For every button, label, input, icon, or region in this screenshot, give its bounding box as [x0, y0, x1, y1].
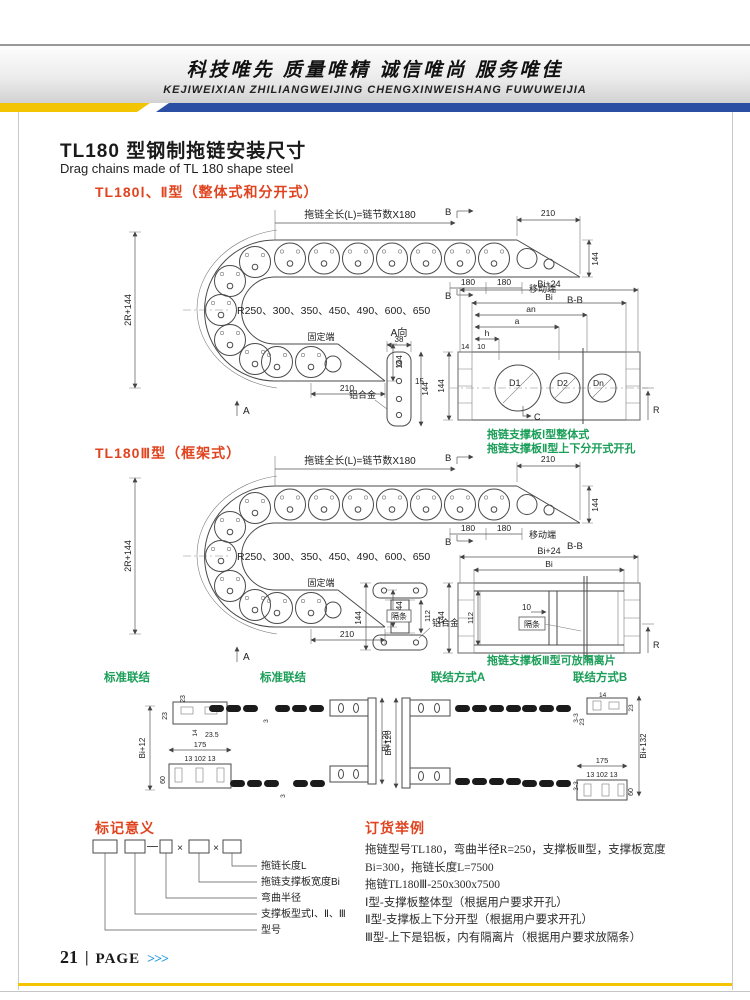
- page-title: TL180 型钢制拖链安装尺寸: [60, 136, 306, 163]
- connection-drawings: Bi+12 23 23 14 23.5 175 13 102 13 60 3 3: [125, 692, 735, 820]
- header-slogan: 科技唯先 质量唯精 诚信唯尚 服务唯佳: [0, 55, 750, 82]
- joint-standard-2: Bi+20: [330, 698, 390, 784]
- header-yellow-stripe: [0, 103, 150, 112]
- order-line: 拖链型号TL180，弯曲半径R=250，支撑板Ⅲ型，支撑板宽度: [365, 842, 740, 860]
- section-bb-type12: D1 D2 Dn Bi+24 Bi an a h 14 10 144 C: [437, 279, 660, 424]
- header-blue-stripe: [156, 103, 750, 112]
- order-line: Bi=300，拖链长度L=7500: [365, 860, 740, 878]
- page-footer: 21 | PAGE >>>: [60, 947, 168, 968]
- dim-h: h: [485, 328, 490, 338]
- order-line: Ⅰ型-支撑板整体型（根据用户要求开孔）: [365, 895, 740, 913]
- dim-a: a: [515, 316, 520, 326]
- hole-d2: D2: [557, 378, 568, 388]
- dim-bi12: Bi+12: [138, 737, 147, 758]
- joint-label-3: 联结方式A: [431, 669, 485, 685]
- marking-label-model: 型号: [261, 923, 281, 936]
- joint-type-a: Bi+120: [384, 698, 521, 788]
- marking-times-2: ×: [213, 843, 219, 854]
- dim-23-d: 23: [628, 704, 635, 712]
- marking-label-plate-type: 支撑板型式Ⅰ、Ⅱ、Ⅲ: [261, 907, 346, 920]
- dim-13-b: 13 102 13: [586, 772, 617, 779]
- dim-bi24: Bi+24: [537, 279, 560, 289]
- dim-23-c: 23: [579, 718, 586, 726]
- dim-10: 10: [477, 342, 485, 351]
- joint-label-1: 标准联结: [104, 669, 150, 685]
- dim-bi: Bi: [545, 292, 553, 302]
- dim-bi120: Bi+120: [384, 730, 393, 756]
- dim-112-section3: 112: [466, 612, 475, 624]
- dim-112-ibeam: 112: [423, 610, 432, 622]
- spacer-bar-label-2: 隔条: [524, 619, 540, 629]
- dim-10-type3: 10: [522, 603, 531, 612]
- marking-times-1: ×: [177, 843, 183, 854]
- dim-c: C: [534, 412, 541, 422]
- dim-bi132: Bi+132: [639, 733, 648, 759]
- drawing-type3: 144 112 隔条 铝合金 10 隔条: [125, 448, 735, 688]
- view-a-plate: A向 38 15 144 铝合金: [349, 326, 430, 426]
- dim-38: 38: [395, 335, 404, 344]
- dim-235: 23.5: [205, 732, 219, 739]
- order-line: 拖链TL180Ⅲ-250x300x7500: [365, 877, 740, 895]
- dim-an: an: [526, 304, 536, 314]
- dim-14-joint: 14: [192, 729, 199, 737]
- order-line: Ⅲ型-上下是铝板，内有隔离片（根据用户要求放隔条）: [365, 930, 740, 948]
- dim-13-a: 13 102 13: [184, 756, 215, 763]
- dim-3-a: 3: [263, 719, 270, 723]
- dim-60-b: 60: [628, 788, 635, 796]
- marking-heading: 标记意义: [95, 818, 155, 838]
- marking-label-width: 拖链支撑板宽度Bi: [261, 875, 340, 888]
- support-plate-note-3: 拖链支撑板Ⅲ型可放隔离片: [487, 654, 616, 668]
- dim-bi-type3: Bi: [545, 559, 553, 569]
- dim-175-a: 175: [194, 740, 207, 749]
- spacer-bar-label: 隔条: [391, 611, 407, 621]
- section1-heading: TL180Ⅰ、Ⅱ型（整体式和分开式）: [95, 182, 318, 202]
- footer-page-number: 21: [60, 947, 78, 968]
- joint-type-b: 3-3 3-3 14 23 23 Bi+132 175 13 102 13 60: [522, 692, 648, 800]
- dim-144-plate: 144: [421, 382, 430, 396]
- dim-144-ibeam: 144: [354, 611, 363, 625]
- footer-page-label: PAGE: [96, 951, 141, 968]
- dim-14: 14: [461, 342, 469, 351]
- dim-14-b: 14: [599, 692, 607, 699]
- catalog-page: 科技唯先 质量唯精 诚信唯尚 服务唯佳 KEJIWEIXIAN ZHILIANG…: [0, 0, 750, 1000]
- dim-bi24-type3: Bi+24: [537, 546, 560, 556]
- section-bb-type3: 10 隔条 Bi+24 Bi 144 112 R: [437, 546, 660, 660]
- footer-arrows-icon: >>>: [147, 952, 168, 968]
- dim-60-a: 60: [160, 776, 167, 784]
- joint-standard-1: Bi+12 23 23 14 23.5 175 13 102 13 60 3 3: [138, 695, 325, 798]
- dim-175-b: 175: [596, 756, 609, 765]
- dim-3-b: 3: [280, 794, 287, 798]
- page-frame-left: [18, 112, 19, 990]
- page-subtitle: Drag chains made of TL 180 shape steel: [60, 161, 293, 176]
- dim-r: R: [653, 405, 660, 415]
- footer-divider: |: [85, 949, 89, 967]
- footer-gray-line: [0, 991, 750, 992]
- drawing-type12: 拖链全长(L)=链节数X180 B B 210 144 180 180 移动端: [125, 202, 735, 442]
- dim-23-a: 23: [180, 695, 187, 703]
- dim-r-type3: R: [653, 640, 660, 650]
- dim-23-b: 23: [162, 712, 169, 720]
- order-example: 拖链型号TL180，弯曲半径R=250，支撑板Ⅲ型，支撑板宽度 Bi=300，拖…: [365, 842, 740, 947]
- header-slogan-romanized: KEJIWEIXIAN ZHILIANGWEIJING CHENGXINWEIS…: [0, 84, 750, 96]
- header-band: 科技唯先 质量唯精 诚信唯尚 服务唯佳 KEJIWEIXIAN ZHILIANG…: [0, 44, 750, 103]
- chain-assembly-type3: [123, 453, 600, 663]
- marking-label-length: 拖链长度L: [261, 859, 307, 872]
- order-line: Ⅱ型-支撑板上下分开型（根据用户要求开孔）: [365, 912, 740, 930]
- hole-dn: Dn: [593, 378, 604, 388]
- dim-144-section3: 144: [437, 611, 446, 625]
- alloy-label: 铝合金: [349, 389, 376, 400]
- joint-label-2: 标准联结: [260, 669, 306, 685]
- marking-label-radius: 弯曲半径: [261, 891, 301, 904]
- hole-d1: D1: [509, 378, 521, 388]
- joint-label-4: 联结方式B: [573, 669, 627, 685]
- footer-yellow-line: [18, 983, 732, 986]
- order-heading: 订货举例: [365, 818, 425, 838]
- dim-144-section: 144: [437, 379, 446, 393]
